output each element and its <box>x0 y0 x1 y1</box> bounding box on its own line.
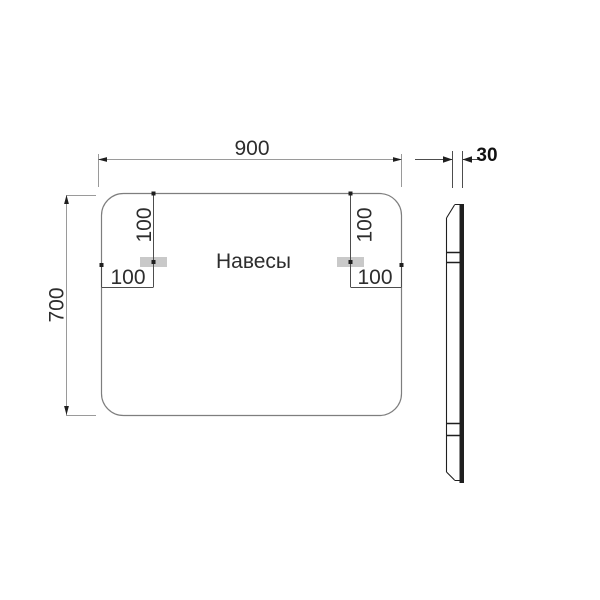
hangers-label: Навесы <box>216 250 291 273</box>
dim-width-label: 900 <box>234 137 269 160</box>
side-view-front-face <box>460 204 465 483</box>
side-view-hanger-bottom <box>447 424 460 436</box>
side-view-hanger-top <box>447 253 460 263</box>
dim-hanger-right-top-label: 100 <box>354 207 377 242</box>
side-view <box>447 204 465 483</box>
mirror-technical-drawing: Навесы 900 700 100 100 100 100 <box>0 0 600 600</box>
dim-point-right-top <box>349 192 353 196</box>
dim-height-arrow-bottom <box>64 406 69 415</box>
dim-point-right-hanger <box>349 260 353 264</box>
dim-width-arrow-left <box>98 157 107 162</box>
dim-hanger-left: 100 100 <box>100 192 157 290</box>
dim-hanger-right-side-label: 100 <box>357 266 392 289</box>
dim-hanger-left-top-label: 100 <box>133 207 156 242</box>
dim-point-left-edge <box>100 263 104 267</box>
dim-height-extension-lines <box>66 196 96 416</box>
dim-height-label: 700 <box>46 287 69 322</box>
dim-height: 700 <box>46 195 97 416</box>
dim-depth-extension-lines <box>453 151 463 188</box>
drawing-canvas: Навесы 900 700 100 100 100 100 <box>0 0 600 600</box>
dim-depth-label: 30 <box>476 145 497 166</box>
dim-point-left-top <box>152 192 156 196</box>
dim-depth-arrow-left <box>443 156 453 162</box>
dim-width: 900 <box>98 137 402 187</box>
side-view-back-outline <box>447 205 460 481</box>
dim-depth-arrow-right <box>463 156 473 162</box>
dim-hanger-left-side-label: 100 <box>110 266 145 289</box>
dim-depth: 30 <box>415 145 498 188</box>
dim-point-left-hanger <box>152 260 156 264</box>
dim-width-arrow-right <box>393 157 402 162</box>
dim-height-arrow-top <box>64 195 69 204</box>
dim-point-right-edge <box>400 263 404 267</box>
dim-hanger-right: 100 100 <box>349 192 404 290</box>
